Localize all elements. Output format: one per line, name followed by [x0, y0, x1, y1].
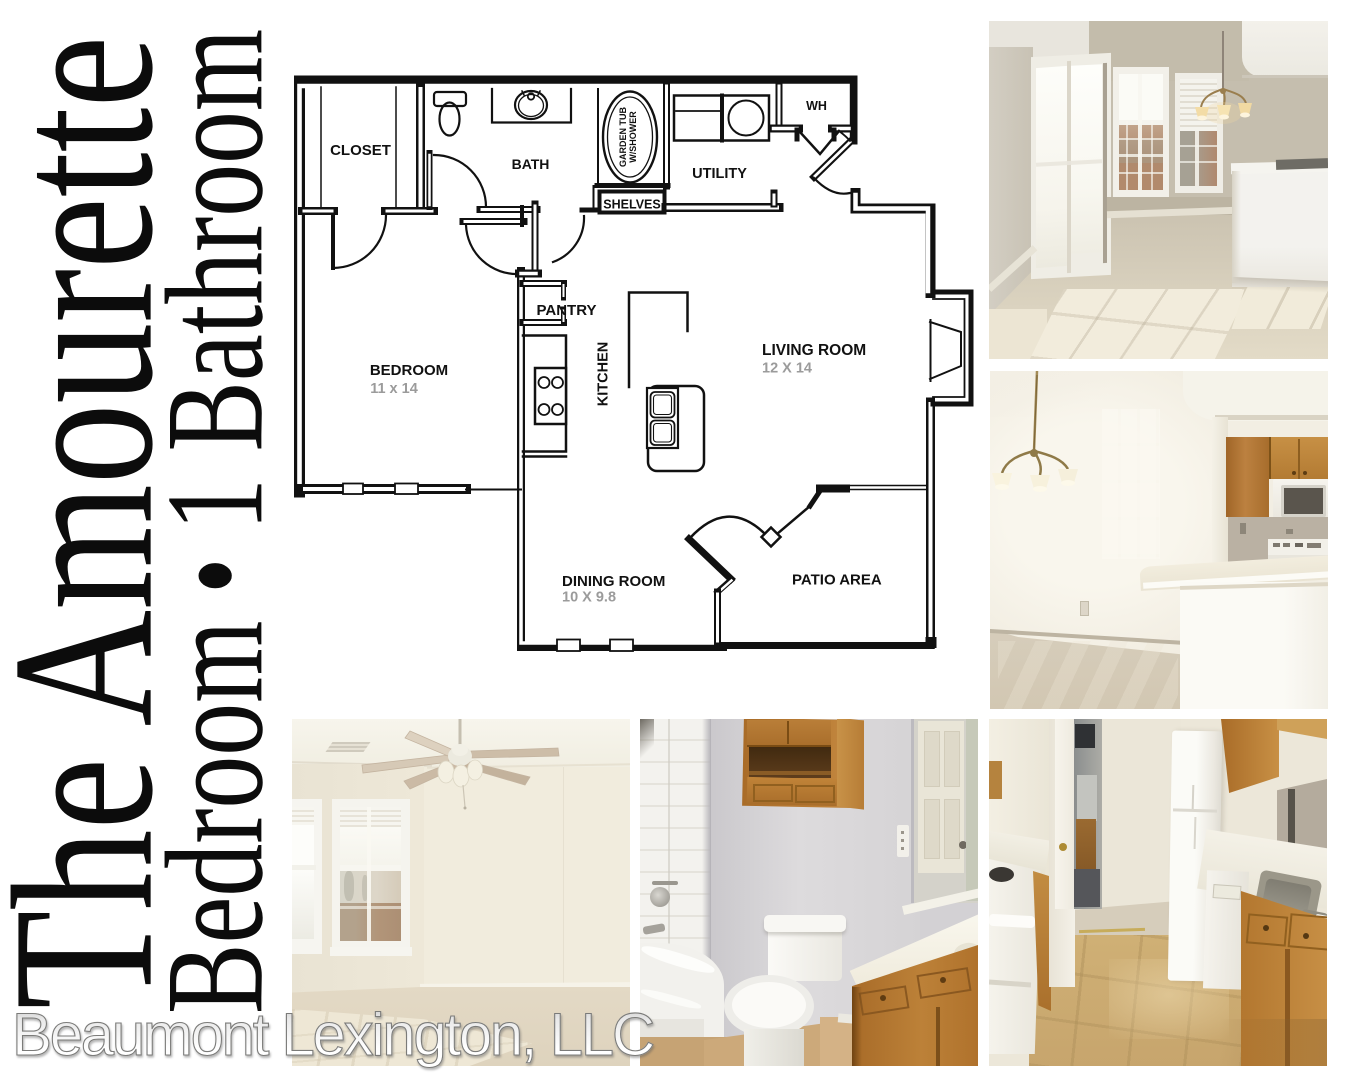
- svg-text:10 X 9.8: 10 X 9.8: [562, 590, 616, 606]
- svg-text:PANTRY: PANTRY: [537, 302, 597, 319]
- svg-text:GARDEN TUB: GARDEN TUB: [618, 107, 628, 167]
- svg-text:DINING ROOM: DINING ROOM: [562, 573, 665, 590]
- svg-text:PATIO AREA: PATIO AREA: [792, 572, 882, 589]
- svg-text:11 x 14: 11 x 14: [370, 381, 418, 397]
- svg-text:SHELVES: SHELVES: [603, 198, 660, 212]
- svg-text:BATH: BATH: [512, 156, 550, 172]
- svg-text:LIVING ROOM: LIVING ROOM: [762, 342, 866, 359]
- svg-text:UTILITY: UTILITY: [692, 166, 747, 182]
- svg-text:KITCHEN: KITCHEN: [596, 342, 612, 406]
- svg-text:WH: WH: [806, 99, 827, 113]
- svg-text:W/SHOWER: W/SHOWER: [628, 111, 638, 163]
- svg-text:CLOSET: CLOSET: [330, 142, 391, 159]
- svg-text:BEDROOM: BEDROOM: [370, 362, 448, 379]
- svg-text:12 X 14: 12 X 14: [762, 361, 812, 377]
